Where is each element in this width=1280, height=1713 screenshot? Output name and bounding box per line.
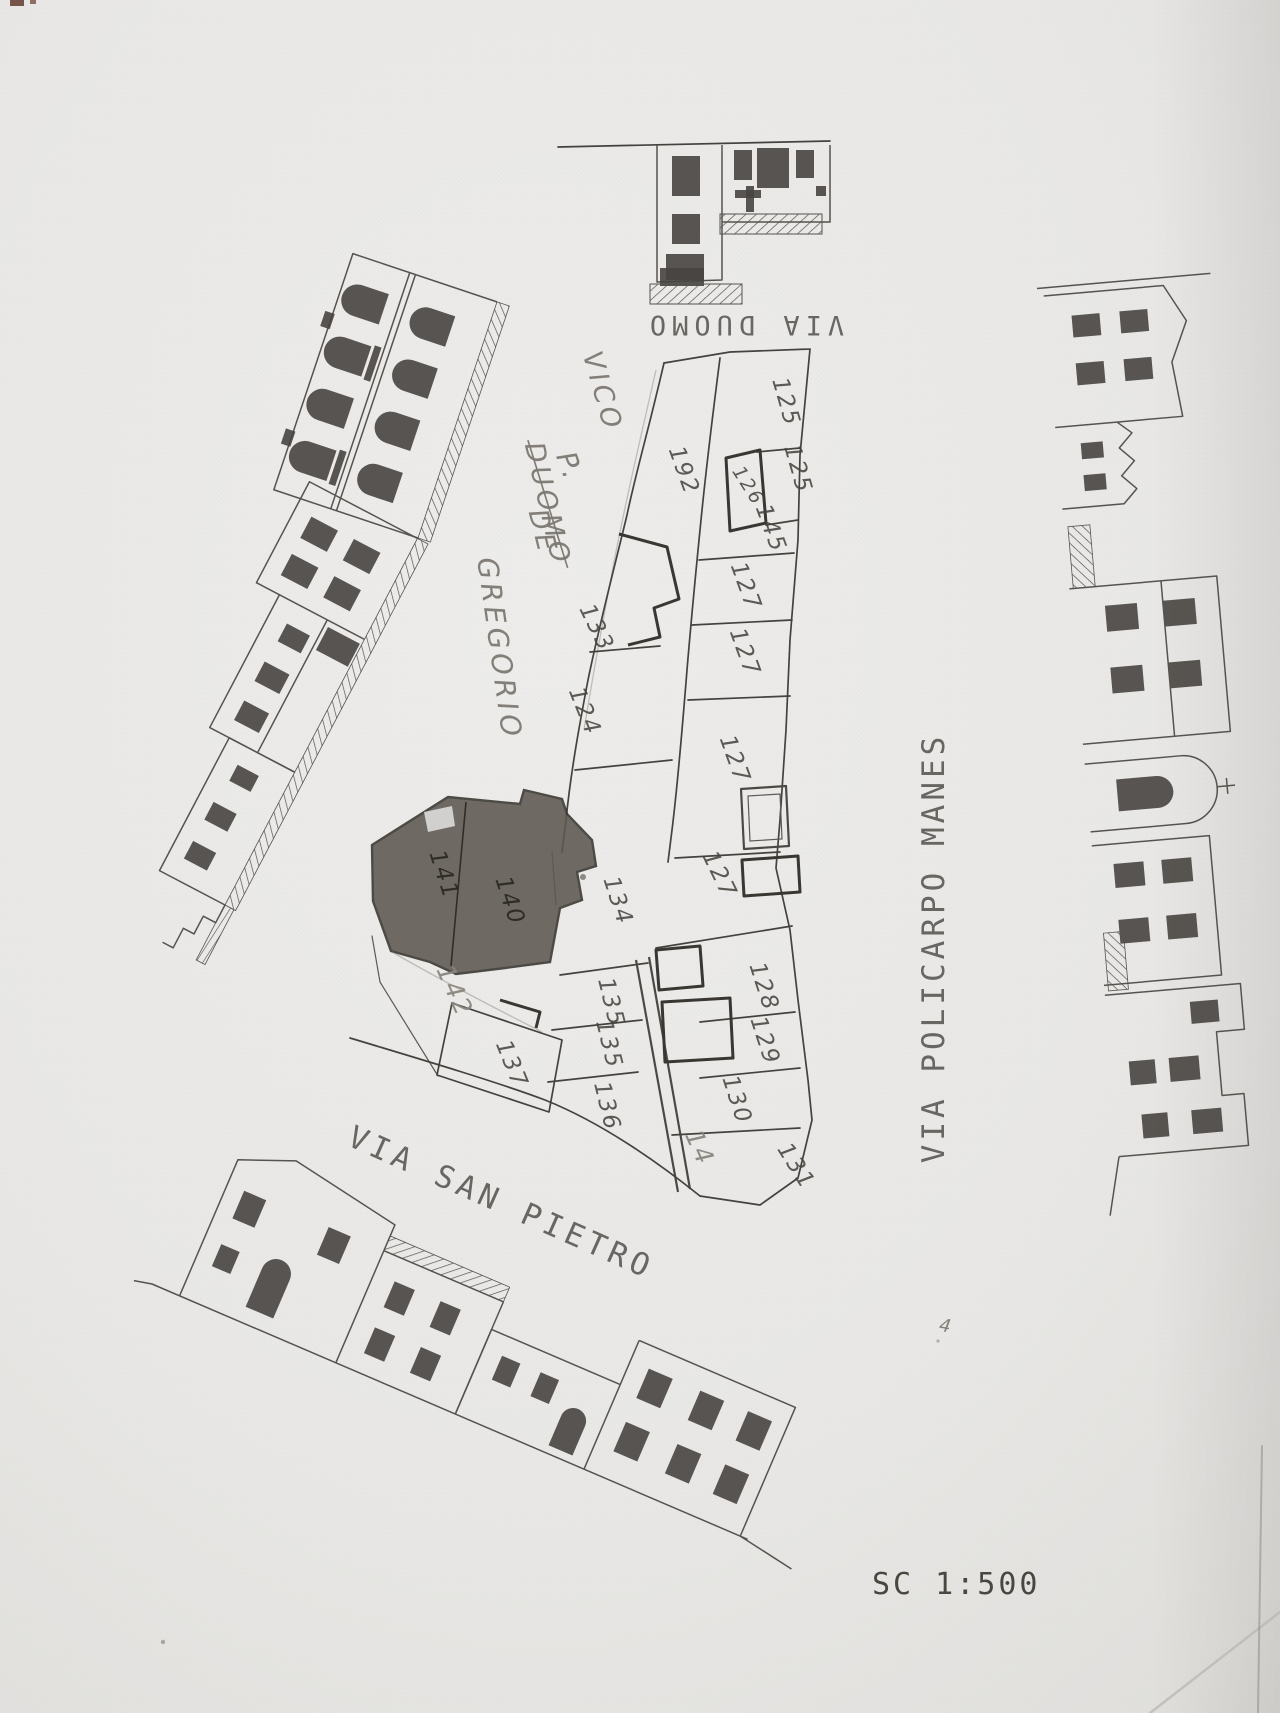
svg-text:VIA DUOMO: VIA DUOMO	[644, 309, 844, 340]
site-plan-drawing: 1251251261451921331241271271271271341281…	[0, 0, 1280, 1713]
scale-label: SC 1:500	[872, 1567, 1041, 1602]
scanned-plan-sheet: 1251251261451921331241271271271271341281…	[0, 0, 1280, 1713]
street-label-via-policarpo-manes: VIA POLICARPO MANES	[916, 733, 952, 1164]
svg-text:VIA POLICARPO MANES: VIA POLICARPO MANES	[916, 733, 952, 1164]
street-label-via-duomo: VIA DUOMO	[644, 309, 844, 340]
